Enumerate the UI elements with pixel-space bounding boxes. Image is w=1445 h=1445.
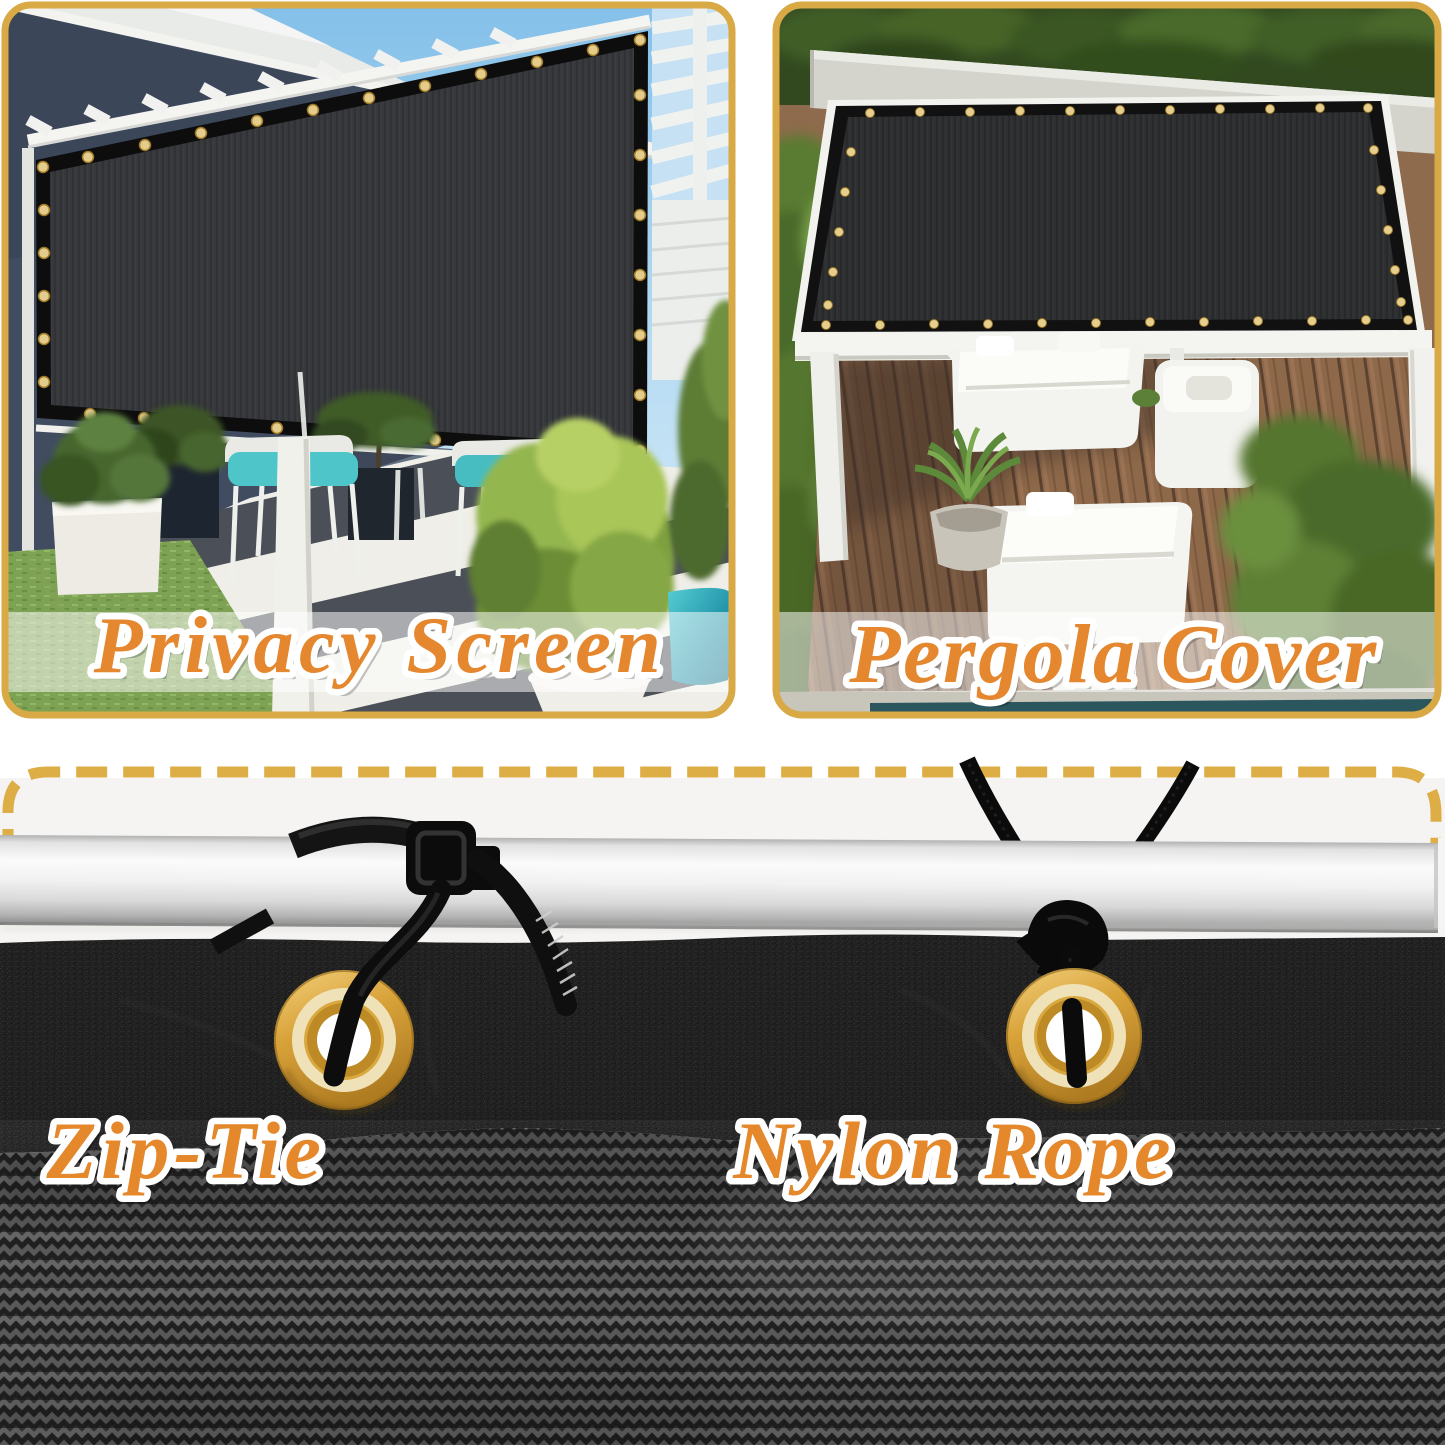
svg-text:Zip-Tie: Zip-Tie — [46, 1105, 326, 1196]
svg-text:Nylon Rope: Nylon Rope — [732, 1105, 1175, 1196]
svg-text:Pergola Cover: Pergola Cover — [848, 608, 1378, 701]
svg-text:Privacy Screen: Privacy Screen — [93, 602, 666, 690]
